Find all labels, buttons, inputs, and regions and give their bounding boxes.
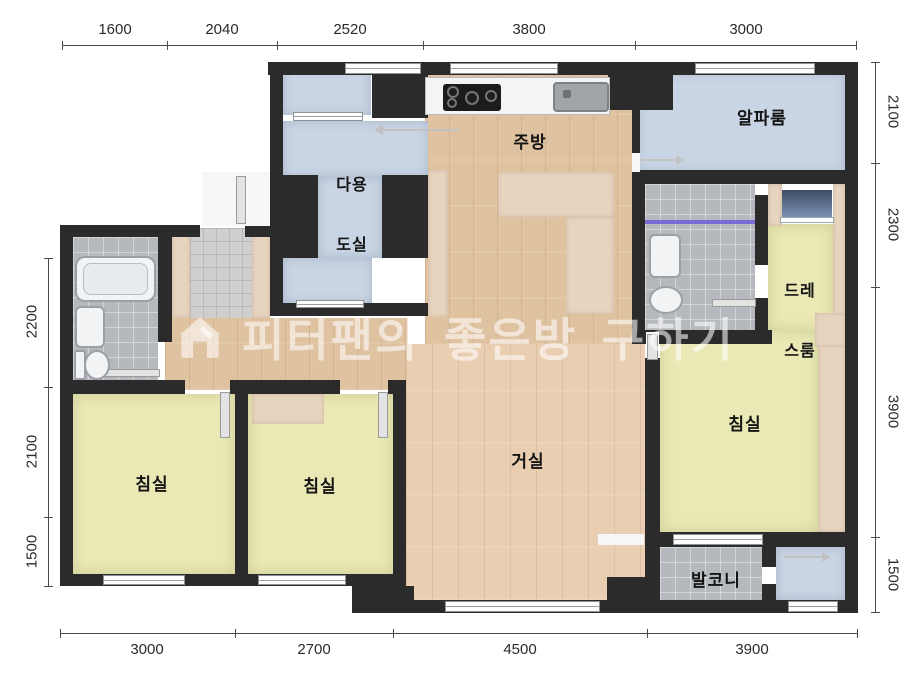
door-opening	[632, 153, 640, 172]
window	[103, 575, 185, 585]
wall	[352, 586, 414, 613]
shower-partition	[645, 220, 755, 224]
balcony-door-opening	[598, 534, 644, 545]
wall	[60, 225, 180, 237]
dim-line-left	[48, 258, 49, 587]
dress-room-window	[782, 190, 832, 218]
window	[450, 63, 558, 74]
wall	[382, 175, 428, 258]
dim-tick	[635, 41, 636, 50]
bedroom-right-door	[647, 334, 658, 360]
room-label-alpha-room: 알파룸	[722, 109, 802, 129]
dim-label-bottom-4500: 4500	[480, 641, 560, 658]
wall	[632, 110, 640, 155]
corridor-cabinet	[428, 170, 448, 317]
utility-closet-floor	[283, 68, 371, 115]
dim-tick	[856, 41, 857, 50]
dim-line-top	[62, 45, 857, 46]
dim-tick	[647, 629, 648, 638]
dim-tick	[423, 41, 424, 50]
dim-label-right-1500: 1500	[885, 535, 902, 615]
burner-icon	[447, 86, 459, 98]
wall	[180, 225, 200, 237]
dress-room-wardrobe	[833, 184, 845, 330]
bathroom-left-door	[104, 369, 160, 377]
wall	[755, 298, 768, 330]
burner-icon	[465, 91, 479, 105]
room-label-balcony: 발코니	[676, 571, 756, 591]
alpha-door-arrow-head	[676, 155, 685, 165]
window	[695, 63, 815, 74]
utility-door-arrow	[382, 129, 460, 131]
dim-label-top-1600: 1600	[75, 21, 155, 38]
wall	[632, 184, 645, 344]
dim-tick	[871, 612, 880, 613]
bedroom-left-door	[220, 392, 230, 438]
wall	[645, 358, 660, 613]
alpha-door-arrow	[640, 159, 678, 161]
dim-tick	[60, 629, 61, 638]
wall	[158, 237, 172, 342]
dim-tick	[871, 287, 880, 288]
dim-label-left-2200: 2200	[24, 282, 41, 362]
dim-tick	[44, 517, 53, 518]
dim-tick	[871, 163, 880, 164]
room-label-utility: 다용 도실	[322, 136, 382, 296]
kitchen-peninsula	[566, 217, 614, 314]
dim-label-bottom-3000: 3000	[107, 641, 187, 658]
wall	[762, 547, 776, 567]
floorplan-canvas: 1600 2040 2520 3800 3000 3000 2700 4500 …	[0, 0, 923, 676]
dim-tick	[235, 629, 236, 638]
toilet	[84, 350, 110, 380]
bedroom-center-door	[378, 392, 388, 438]
balcony-annex-floor	[776, 547, 845, 600]
dim-label-bottom-2700: 2700	[274, 641, 354, 658]
window	[673, 534, 763, 545]
dim-line-right	[875, 62, 876, 613]
wall	[762, 584, 776, 600]
window	[258, 575, 346, 585]
toilet	[649, 286, 683, 314]
dim-tick	[62, 41, 63, 50]
kitchen-peninsula	[498, 172, 614, 217]
room-label-dress-line1: 드레	[770, 282, 830, 302]
wall	[230, 380, 340, 394]
wall	[235, 394, 248, 574]
wall	[245, 225, 270, 237]
burner-icon	[447, 98, 457, 108]
burner-icon	[485, 90, 497, 102]
living-room-floor	[406, 344, 645, 600]
faucet-icon	[563, 90, 571, 98]
washbasin	[649, 234, 681, 278]
room-label-living-room: 거실	[488, 452, 568, 472]
bedroom-center-headboard	[252, 394, 324, 424]
entry-cabinet	[252, 228, 270, 318]
wall	[393, 380, 406, 586]
dim-tick	[871, 537, 880, 538]
dim-label-top-2520: 2520	[310, 21, 390, 38]
wall	[632, 62, 673, 110]
wall	[607, 577, 660, 613]
room-label-dress-line2: 스룸	[770, 342, 830, 362]
dim-label-bottom-3900: 3900	[712, 641, 792, 658]
dim-label-top-3800: 3800	[489, 21, 569, 38]
dim-label-right-2300: 2300	[885, 185, 902, 265]
dim-tick	[44, 258, 53, 259]
dim-label-right-3900: 3900	[885, 372, 902, 452]
door-threshold	[296, 300, 364, 308]
door-threshold	[293, 112, 363, 121]
bathtub	[75, 256, 156, 302]
entry-floor	[190, 228, 252, 318]
dim-tick	[167, 41, 168, 50]
dim-tick	[393, 629, 394, 638]
wall	[755, 195, 768, 265]
wall	[275, 175, 318, 258]
dim-tick	[44, 387, 53, 388]
dim-label-top-3000: 3000	[706, 21, 786, 38]
room-label-kitchen: 주방	[490, 133, 570, 153]
room-label-utility-line2: 도실	[322, 236, 382, 256]
dim-label-top-2040: 2040	[182, 21, 262, 38]
entry-cabinet	[172, 228, 190, 318]
dim-line-bottom	[60, 633, 858, 634]
balcony-door-arrow	[784, 556, 824, 558]
window	[345, 63, 421, 74]
bathroom-right-door	[712, 299, 756, 307]
dim-label-left-2100: 2100	[24, 412, 41, 492]
room-label-bedroom-center: 침실	[280, 477, 360, 497]
washbasin	[75, 306, 105, 348]
wall	[60, 225, 73, 580]
window	[445, 601, 600, 612]
room-label-dress-room: 드레 스룸	[770, 242, 830, 402]
window-sill	[780, 217, 834, 223]
dim-label-left-1500: 1500	[24, 512, 41, 592]
room-label-bedroom-right: 침실	[705, 415, 785, 435]
wall	[60, 380, 185, 394]
window	[788, 601, 838, 612]
cooktop	[443, 84, 501, 111]
wall	[632, 170, 845, 184]
room-label-bedroom-left: 침실	[112, 475, 192, 495]
room-label-utility-line1: 다용	[322, 176, 382, 196]
dim-tick	[871, 62, 880, 63]
entrance-door	[236, 176, 246, 224]
utility-door-arrow-head	[374, 125, 383, 135]
dim-tick	[44, 586, 53, 587]
dim-label-right-2100: 2100	[885, 72, 902, 152]
kitchen-sink	[553, 82, 609, 112]
dim-tick	[277, 41, 278, 50]
bathtub-basin	[83, 263, 148, 295]
balcony-door-arrow-head	[822, 552, 831, 562]
dim-tick	[857, 629, 858, 638]
wall	[845, 62, 858, 613]
